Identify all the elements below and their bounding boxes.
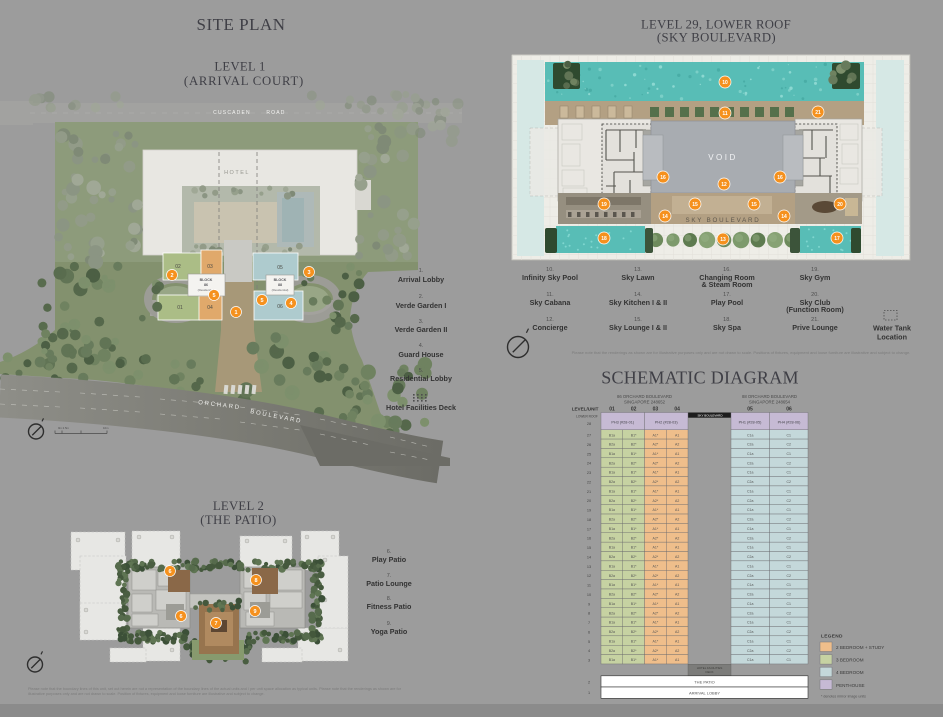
svg-text:PH2 (#28-03): PH2 (#28-03)	[655, 421, 679, 425]
svg-text:A1*: A1*	[653, 527, 659, 531]
svg-text:B2a: B2a	[609, 499, 615, 503]
svg-text:20: 20	[587, 499, 591, 503]
svg-text:B1*: B1*	[631, 471, 637, 475]
svg-text:03: 03	[653, 407, 659, 413]
svg-text:illustrative purposes only and: illustrative purposes only and are not d…	[28, 692, 265, 696]
svg-text:B1a: B1a	[609, 658, 615, 662]
svg-text:BLOCK: BLOCK	[274, 278, 287, 282]
svg-text:C2: C2	[787, 499, 792, 503]
svg-text:8: 8	[254, 578, 257, 584]
svg-text:* denotes mirror image units: * denotes mirror image units	[821, 695, 866, 699]
svg-text:PH4 (#28-06): PH4 (#28-06)	[778, 421, 802, 425]
svg-text:C2: C2	[787, 630, 792, 634]
svg-text:ARRIVAL LOBBY: ARRIVAL LOBBY	[689, 691, 720, 696]
svg-text:B1*: B1*	[631, 527, 637, 531]
svg-text:B2a: B2a	[609, 443, 615, 447]
svg-text:A1: A1	[675, 471, 679, 475]
svg-text:A2*: A2*	[653, 536, 659, 540]
svg-text:25: 25	[587, 452, 591, 456]
svg-text:24: 24	[587, 462, 591, 466]
svg-text:23: 23	[587, 471, 591, 475]
svg-text:21: 21	[587, 490, 591, 494]
svg-text:C1a: C1a	[747, 452, 753, 456]
svg-text:A1*: A1*	[653, 658, 659, 662]
svg-text:A2*: A2*	[653, 649, 659, 653]
svg-text:6: 6	[168, 569, 171, 575]
svg-text:5: 5	[588, 640, 590, 644]
svg-text:88 ORCHARD BOULEVARD: 88 ORCHARD BOULEVARD	[742, 394, 797, 399]
svg-text:05: 05	[747, 407, 753, 413]
svg-text:17: 17	[834, 236, 840, 242]
svg-text:C2: C2	[787, 518, 792, 522]
svg-text:B2*: B2*	[631, 611, 637, 615]
svg-text:C2a: C2a	[747, 574, 753, 578]
svg-text:Residential Lobby: Residential Lobby	[390, 374, 452, 383]
svg-text:SINGAPORE 248654: SINGAPORE 248654	[749, 400, 791, 405]
svg-text:Patio Lounge: Patio Lounge	[366, 579, 412, 588]
svg-text:A1: A1	[675, 489, 679, 493]
svg-text:Sky Cabana: Sky Cabana	[530, 298, 572, 307]
svg-text:5: 5	[260, 298, 263, 304]
svg-text:2.: 2.	[419, 294, 424, 300]
svg-text:A1: A1	[675, 639, 679, 643]
svg-text:A2*: A2*	[653, 518, 659, 522]
svg-text:A2: A2	[675, 518, 679, 522]
svg-text:C2a: C2a	[747, 593, 753, 597]
svg-text:C2: C2	[787, 611, 792, 615]
svg-text:B1a: B1a	[609, 583, 615, 587]
svg-text:A2*: A2*	[653, 630, 659, 634]
svg-text:C2a: C2a	[747, 443, 753, 447]
svg-text:B1*: B1*	[631, 583, 637, 587]
svg-text:Sky Kitchen I & II: Sky Kitchen I & II	[609, 298, 667, 307]
svg-text:C2a: C2a	[747, 630, 753, 634]
svg-text:C1a: C1a	[747, 621, 753, 625]
svg-text:C1: C1	[787, 489, 792, 493]
svg-text:A2*: A2*	[653, 499, 659, 503]
svg-text:13: 13	[720, 237, 726, 243]
svg-text:A1*: A1*	[653, 621, 659, 625]
svg-text:C2: C2	[787, 480, 792, 484]
svg-text:16: 16	[660, 175, 666, 181]
svg-text:Sky Spa: Sky Spa	[713, 323, 742, 332]
svg-text:B2*: B2*	[631, 480, 637, 484]
svg-text:Please note that the rendering: Please note that the renderings as shown…	[572, 350, 911, 355]
svg-text:LEVEL 2: LEVEL 2	[213, 499, 264, 513]
svg-text:B1*: B1*	[631, 564, 637, 568]
svg-text:LEVEL 29, LOWER ROOF: LEVEL 29, LOWER ROOF	[641, 18, 791, 32]
svg-text:C1: C1	[787, 433, 792, 437]
svg-text:A2*: A2*	[653, 574, 659, 578]
svg-text:B2*: B2*	[631, 593, 637, 597]
svg-text:7: 7	[214, 621, 217, 627]
svg-text:C2: C2	[787, 555, 792, 559]
svg-text:B2a: B2a	[609, 480, 615, 484]
svg-text:Prive Lounge: Prive Lounge	[792, 323, 838, 332]
svg-text:A2: A2	[675, 649, 679, 653]
svg-text:C1: C1	[787, 527, 792, 531]
svg-text:C1a: C1a	[747, 471, 753, 475]
svg-text:THE PATIO: THE PATIO	[694, 679, 715, 684]
svg-text:Water Tank: Water Tank	[873, 324, 911, 333]
svg-text:C2a: C2a	[747, 518, 753, 522]
svg-text:15: 15	[751, 202, 757, 208]
svg-text:& Steam Room: & Steam Room	[701, 280, 752, 289]
svg-text:A1*: A1*	[653, 452, 659, 456]
svg-text:14: 14	[781, 214, 787, 220]
svg-text:C1: C1	[787, 658, 792, 662]
svg-text:B2*: B2*	[631, 461, 637, 465]
svg-text:0m 2.5m: 0m 2.5m	[58, 426, 70, 430]
svg-text:A2: A2	[675, 480, 679, 484]
svg-text:6: 6	[588, 630, 590, 634]
svg-text:A2*: A2*	[653, 593, 659, 597]
svg-text:04: 04	[207, 305, 213, 311]
svg-text:C1a: C1a	[747, 433, 753, 437]
svg-text:Sky Lawn: Sky Lawn	[621, 273, 654, 282]
svg-text:3 BEDROOM: 3 BEDROOM	[836, 658, 864, 663]
svg-text:B1*: B1*	[631, 546, 637, 550]
svg-text:LEVEL 1: LEVEL 1	[214, 60, 265, 74]
svg-text:B1a: B1a	[609, 452, 615, 456]
svg-text:02: 02	[175, 264, 181, 270]
svg-text:14: 14	[587, 555, 591, 559]
svg-text:LOWER ROOF: LOWER ROOF	[576, 415, 598, 419]
svg-text:B1a: B1a	[609, 639, 615, 643]
svg-text:C1: C1	[787, 452, 792, 456]
svg-text:11: 11	[587, 584, 591, 588]
svg-text:C1: C1	[787, 471, 792, 475]
svg-text:A2: A2	[675, 555, 679, 559]
svg-text:B2*: B2*	[631, 536, 637, 540]
svg-text:BLOCK: BLOCK	[200, 278, 213, 282]
svg-text:B1a: B1a	[609, 471, 615, 475]
svg-text:Location: Location	[877, 333, 907, 342]
svg-text:B2a: B2a	[609, 630, 615, 634]
svg-text:3: 3	[588, 659, 590, 663]
svg-text:A2: A2	[675, 630, 679, 634]
svg-text:VOID: VOID	[708, 153, 738, 162]
svg-text:Play Patio: Play Patio	[372, 555, 407, 564]
svg-text:B1a: B1a	[609, 489, 615, 493]
svg-text:PENTHOUSE: PENTHOUSE	[836, 683, 865, 688]
svg-text:C1a: C1a	[747, 583, 753, 587]
svg-text:28: 28	[587, 422, 591, 426]
svg-text:16: 16	[777, 175, 783, 181]
svg-text:B1a: B1a	[609, 527, 615, 531]
svg-text:A2: A2	[675, 611, 679, 615]
svg-text:SKY BOULEVARD: SKY BOULEVARD	[685, 217, 760, 224]
svg-text:Yoga Patio: Yoga Patio	[371, 627, 408, 636]
svg-text:B1*: B1*	[631, 621, 637, 625]
svg-text:C2a: C2a	[747, 555, 753, 559]
svg-text:Arrival Lobby: Arrival Lobby	[398, 275, 444, 284]
svg-text:19: 19	[587, 509, 591, 513]
svg-text:Play Pool: Play Pool	[711, 298, 743, 307]
svg-text:C1: C1	[787, 621, 792, 625]
svg-text:A1*: A1*	[653, 471, 659, 475]
svg-text:20: 20	[837, 202, 843, 208]
svg-text:Hotel Facilities Deck: Hotel Facilities Deck	[386, 403, 456, 412]
svg-text:C1: C1	[787, 508, 792, 512]
svg-text:B2*: B2*	[631, 555, 637, 559]
svg-text:B1a: B1a	[609, 546, 615, 550]
svg-text:14: 14	[662, 214, 668, 220]
svg-text:(Function Room): (Function Room)	[786, 305, 844, 314]
svg-text:B2*: B2*	[631, 649, 637, 653]
svg-text:Guard House: Guard House	[398, 350, 443, 359]
svg-text:C1: C1	[787, 583, 792, 587]
svg-text:C2: C2	[787, 443, 792, 447]
svg-text:27: 27	[587, 434, 591, 438]
svg-text:A1: A1	[675, 621, 679, 625]
svg-text:A2: A2	[675, 461, 679, 465]
svg-text:SITE PLAN: SITE PLAN	[196, 15, 285, 34]
svg-text:B2*: B2*	[631, 630, 637, 634]
svg-text:A2*: A2*	[653, 461, 659, 465]
svg-text:A1*: A1*	[653, 489, 659, 493]
svg-text:10: 10	[722, 80, 728, 86]
svg-text:9: 9	[588, 602, 590, 606]
svg-text:B2a: B2a	[609, 555, 615, 559]
svg-text:C1a: C1a	[747, 546, 753, 550]
svg-text:A1: A1	[675, 564, 679, 568]
svg-text:B1*: B1*	[631, 489, 637, 493]
svg-text:10m: 10m	[103, 426, 109, 430]
svg-text:19: 19	[601, 202, 607, 208]
svg-text:1: 1	[588, 691, 590, 695]
svg-text:A2*: A2*	[653, 480, 659, 484]
svg-text:C1: C1	[787, 546, 792, 550]
svg-text:Sky Gym: Sky Gym	[800, 273, 831, 282]
svg-text:C1a: C1a	[747, 564, 753, 568]
svg-text:C2a: C2a	[747, 611, 753, 615]
svg-text:A1*: A1*	[653, 639, 659, 643]
svg-text:A1*: A1*	[653, 583, 659, 587]
svg-text:B2a: B2a	[609, 574, 615, 578]
svg-text:A2: A2	[675, 593, 679, 597]
svg-text:11: 11	[722, 111, 728, 117]
svg-text:7: 7	[588, 621, 590, 625]
svg-text:A1: A1	[675, 546, 679, 550]
svg-text:A2*: A2*	[653, 611, 659, 615]
svg-text:B2*: B2*	[631, 518, 637, 522]
svg-text:15: 15	[587, 546, 591, 550]
svg-text:10: 10	[587, 593, 591, 597]
svg-text:C2: C2	[787, 574, 792, 578]
svg-text:A2: A2	[675, 443, 679, 447]
svg-text:B1*: B1*	[631, 602, 637, 606]
svg-text:Concierge: Concierge	[532, 323, 567, 332]
svg-text:A1: A1	[675, 527, 679, 531]
svg-text:B1a: B1a	[609, 564, 615, 568]
svg-text:6: 6	[179, 614, 182, 620]
svg-text:A1: A1	[675, 602, 679, 606]
svg-text:04: 04	[674, 407, 680, 413]
svg-text:18: 18	[587, 518, 591, 522]
svg-text:C1: C1	[787, 564, 792, 568]
svg-text:C1: C1	[787, 639, 792, 643]
svg-text:SCHEMATIC DIAGRAM: SCHEMATIC DIAGRAM	[601, 368, 799, 388]
svg-text:(THE PATIO): (THE PATIO)	[200, 513, 277, 527]
svg-text:9: 9	[253, 609, 256, 615]
svg-text:3: 3	[307, 270, 310, 276]
svg-text:(SKY BOULEVARD): (SKY BOULEVARD)	[657, 31, 776, 45]
svg-text:B1a: B1a	[609, 621, 615, 625]
svg-text:A1: A1	[675, 452, 679, 456]
svg-text:C1: C1	[787, 602, 792, 606]
svg-text:C2a: C2a	[747, 480, 753, 484]
svg-text:C1a: C1a	[747, 658, 753, 662]
svg-text:C2: C2	[787, 536, 792, 540]
svg-text:A2*: A2*	[653, 443, 659, 447]
svg-text:01: 01	[609, 407, 615, 413]
svg-text:21: 21	[815, 110, 821, 116]
svg-text:C2: C2	[787, 649, 792, 653]
svg-text:Fitness Patio: Fitness Patio	[367, 602, 412, 611]
svg-text:C1a: C1a	[747, 639, 753, 643]
svg-text:C1a: C1a	[747, 602, 753, 606]
svg-text:B2*: B2*	[631, 574, 637, 578]
svg-text:13: 13	[587, 565, 591, 569]
svg-text:C2a: C2a	[747, 536, 753, 540]
svg-text:A2: A2	[675, 536, 679, 540]
svg-text:B1*: B1*	[631, 433, 637, 437]
svg-text:SINGAPORE 248652: SINGAPORE 248652	[624, 400, 666, 405]
svg-text:DECK: DECK	[705, 670, 713, 674]
svg-text:Sky Lounge I & II: Sky Lounge I & II	[609, 323, 667, 332]
svg-text:B2*: B2*	[631, 443, 637, 447]
svg-text:B2a: B2a	[609, 649, 615, 653]
svg-text:18: 18	[601, 236, 607, 242]
svg-text:(Residential): (Residential)	[272, 288, 289, 292]
svg-text:1.: 1.	[419, 268, 424, 274]
svg-text:B1*: B1*	[631, 639, 637, 643]
svg-text:26: 26	[587, 443, 591, 447]
svg-text:Verde Garden I: Verde Garden I	[396, 301, 447, 310]
svg-text:4.: 4.	[419, 343, 424, 349]
svg-text:5: 5	[212, 293, 215, 299]
svg-text:22: 22	[587, 480, 591, 484]
svg-text:B1a: B1a	[609, 433, 615, 437]
svg-text:2: 2	[588, 680, 590, 684]
svg-text:B1*: B1*	[631, 508, 637, 512]
svg-text:C1a: C1a	[747, 527, 753, 531]
svg-text:C2: C2	[787, 461, 792, 465]
svg-text:15: 15	[692, 202, 698, 208]
svg-text:06: 06	[277, 304, 283, 310]
svg-text:05: 05	[277, 265, 283, 271]
svg-text:B2a: B2a	[609, 611, 615, 615]
svg-text:03: 03	[207, 264, 213, 270]
svg-text:CUSCADEN: CUSCADEN	[213, 110, 251, 116]
svg-text:A1*: A1*	[653, 546, 659, 550]
svg-text:B1*: B1*	[631, 658, 637, 662]
svg-text:C2a: C2a	[747, 499, 753, 503]
svg-text:PH1 (#28-05): PH1 (#28-05)	[739, 421, 763, 425]
svg-text:Please note that the boundary: Please note that the boundary lines of t…	[28, 687, 402, 691]
svg-text:Infinity Sky Pool: Infinity Sky Pool	[522, 273, 578, 282]
svg-text:LEGEND: LEGEND	[821, 634, 843, 640]
svg-text:4: 4	[588, 649, 590, 653]
svg-text:88: 88	[278, 283, 282, 287]
svg-text:A1: A1	[675, 508, 679, 512]
svg-text:02: 02	[631, 407, 637, 413]
svg-text:ROAD: ROAD	[266, 110, 285, 116]
svg-text:Verde Garden II: Verde Garden II	[395, 325, 448, 334]
svg-text:A1*: A1*	[653, 564, 659, 568]
svg-text:A1*: A1*	[653, 508, 659, 512]
svg-text:B2a: B2a	[609, 593, 615, 597]
svg-text:2 BEDROOM + STUDY: 2 BEDROOM + STUDY	[836, 645, 884, 650]
svg-text:86: 86	[204, 283, 208, 287]
svg-text:B1a: B1a	[609, 602, 615, 606]
svg-text:C1a: C1a	[747, 489, 753, 493]
svg-text:A1: A1	[675, 583, 679, 587]
svg-text:4 BEDROOM: 4 BEDROOM	[836, 670, 864, 675]
svg-text:8: 8	[588, 612, 590, 616]
svg-text:B1*: B1*	[631, 452, 637, 456]
svg-text:12: 12	[587, 574, 591, 578]
svg-text:1: 1	[234, 310, 237, 316]
svg-text:A1*: A1*	[653, 433, 659, 437]
svg-text:B2a: B2a	[609, 536, 615, 540]
svg-text:PH3 (#28-01): PH3 (#28-01)	[611, 421, 635, 425]
svg-text:LEVEL/UNIT: LEVEL/UNIT	[572, 407, 599, 412]
svg-text:B2a: B2a	[609, 461, 615, 465]
svg-text:16: 16	[587, 537, 591, 541]
svg-text:B1a: B1a	[609, 508, 615, 512]
svg-text:86 ORCHARD BOULEVARD: 86 ORCHARD BOULEVARD	[617, 394, 672, 399]
svg-text:12: 12	[721, 182, 727, 188]
svg-text:C1a: C1a	[747, 508, 753, 512]
svg-text:A2: A2	[675, 574, 679, 578]
svg-text:B2*: B2*	[631, 499, 637, 503]
svg-text:A1: A1	[675, 433, 679, 437]
svg-text:A1: A1	[675, 658, 679, 662]
svg-text:06: 06	[786, 407, 792, 413]
svg-text:01: 01	[177, 305, 183, 311]
svg-text:A1*: A1*	[653, 602, 659, 606]
svg-text:C2a: C2a	[747, 461, 753, 465]
svg-text:A2*: A2*	[653, 555, 659, 559]
svg-text:(ARRIVAL COURT): (ARRIVAL COURT)	[184, 74, 304, 88]
svg-text:C2a: C2a	[747, 649, 753, 653]
svg-text:A2: A2	[675, 499, 679, 503]
svg-text:17: 17	[587, 527, 591, 531]
svg-text:HOTEL: HOTEL	[224, 170, 250, 176]
svg-text:B2a: B2a	[609, 518, 615, 522]
svg-text:C2: C2	[787, 593, 792, 597]
svg-text:SKY BOULEVARD: SKY BOULEVARD	[697, 414, 723, 418]
svg-text:2: 2	[170, 273, 173, 279]
